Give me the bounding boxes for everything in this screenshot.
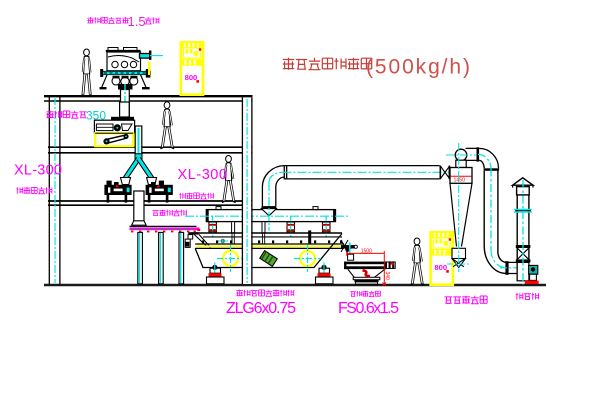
svg-text:(500kg/h): (500kg/h): [366, 56, 470, 79]
svg-text:340: 340: [384, 272, 390, 281]
svg-text:XL-300: XL-300: [178, 167, 228, 183]
svg-text:ZLG6x0.75: ZLG6x0.75: [226, 300, 296, 317]
svg-text:FS0.6x1.5: FS0.6x1.5: [338, 300, 399, 317]
svg-text:1500: 1500: [361, 249, 372, 255]
svg-text:XL-300: XL-300: [14, 163, 62, 179]
svg-text:350: 350: [86, 109, 106, 123]
svg-text:1.5: 1.5: [128, 14, 146, 29]
svg-text:1450: 1450: [454, 178, 466, 184]
